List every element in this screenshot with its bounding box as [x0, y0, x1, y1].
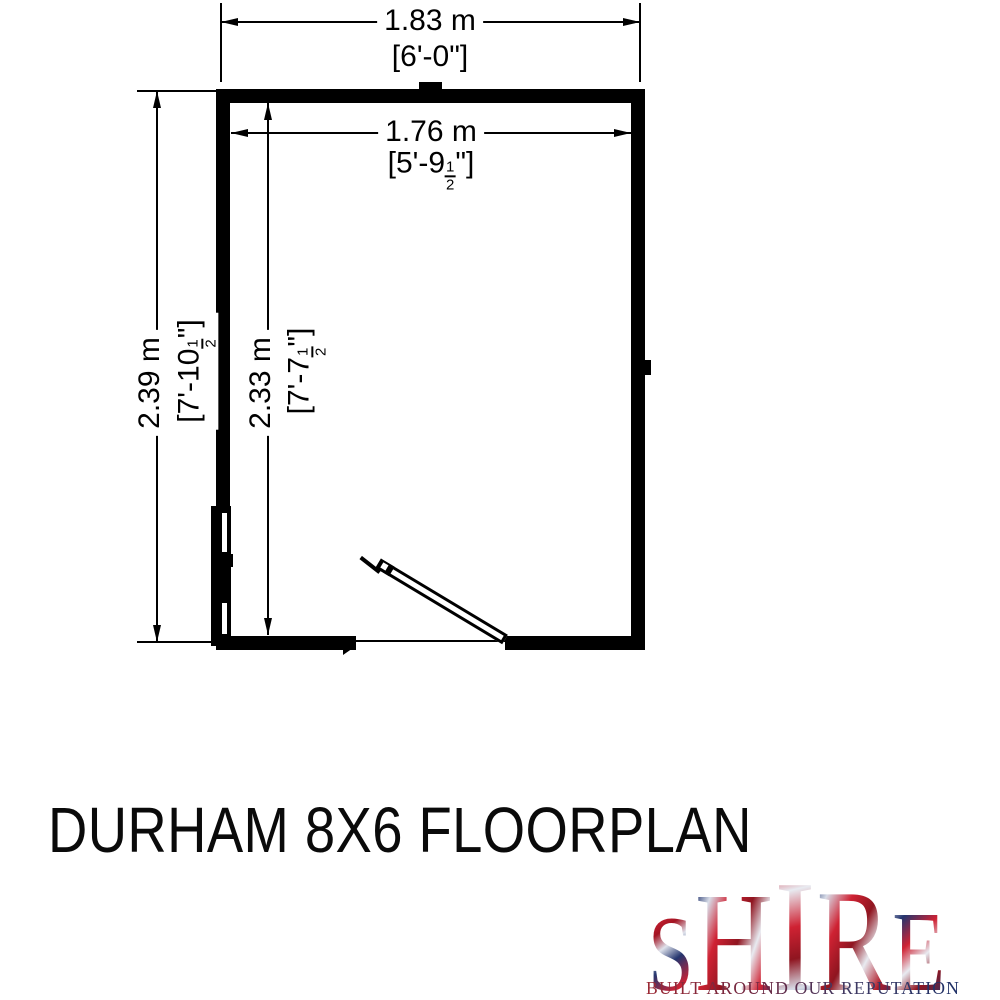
- ext-line-outer-width-right: [639, 3, 641, 82]
- shire-logo: SHIRE BUILT AROUND OUR REPUTATION: [646, 858, 958, 1000]
- outer-width-metric-label: 1.83 m: [377, 5, 483, 37]
- floor-plan-drawing: 1.83 m [6'-0"] 1.76 m [5'-912"] 2.39 m […: [0, 0, 1000, 780]
- window-mullion: [229, 554, 233, 567]
- plan-title: DURHAM 8X6 FLOORPLAN: [48, 797, 752, 864]
- door-leaf: [375, 559, 508, 645]
- arrow-outer-depth-top: [153, 91, 161, 108]
- roof-apex-tick-top: [419, 82, 442, 90]
- window: [211, 506, 231, 646]
- wall-top: [216, 89, 645, 103]
- ext-line-outer-depth-bottom: [137, 641, 216, 643]
- outer-depth-imperial-label: [7'-1012"]: [173, 312, 218, 429]
- inner-depth-metric-label: 2.33 m: [245, 330, 277, 436]
- inner-depth-imperial-label: [7'-712"]: [283, 321, 328, 422]
- door-opening-threshold: [356, 640, 505, 642]
- arrow-inner-depth-top: [264, 103, 272, 120]
- inner-width-imperial-label: [5'-912"]: [381, 147, 482, 192]
- wall-right: [631, 89, 645, 650]
- ext-line-outer-width-left: [220, 3, 222, 82]
- wall-bottom-left: [216, 636, 356, 650]
- shire-logo-tagline: BUILT AROUND OUR REPUTATION: [646, 978, 960, 999]
- window-pane-lower: [222, 603, 227, 634]
- arrow-inner-width-left: [231, 129, 248, 137]
- outer-width-imperial-label: [6'-0"]: [385, 41, 475, 73]
- arrow-outer-width-left: [221, 18, 238, 26]
- window-pane-upper: [222, 513, 227, 552]
- door-handle-hole: [380, 562, 388, 570]
- door-swing-tick: [343, 646, 356, 655]
- inner-width-metric-label: 1.76 m: [378, 116, 484, 148]
- arrow-inner-width-right: [614, 129, 631, 137]
- arrow-inner-depth-bottom: [264, 618, 272, 635]
- arrow-outer-depth-bottom: [153, 625, 161, 642]
- roof-apex-tick-right: [644, 360, 651, 375]
- wall-bottom-right: [505, 636, 645, 650]
- outer-depth-metric-label: 2.39 m: [134, 330, 166, 436]
- arrow-outer-width-right: [623, 18, 640, 26]
- ext-line-outer-depth-top: [137, 90, 216, 92]
- floorplan-image: 1.83 m [6'-0"] 1.76 m [5'-912"] 2.39 m […: [0, 0, 1000, 1000]
